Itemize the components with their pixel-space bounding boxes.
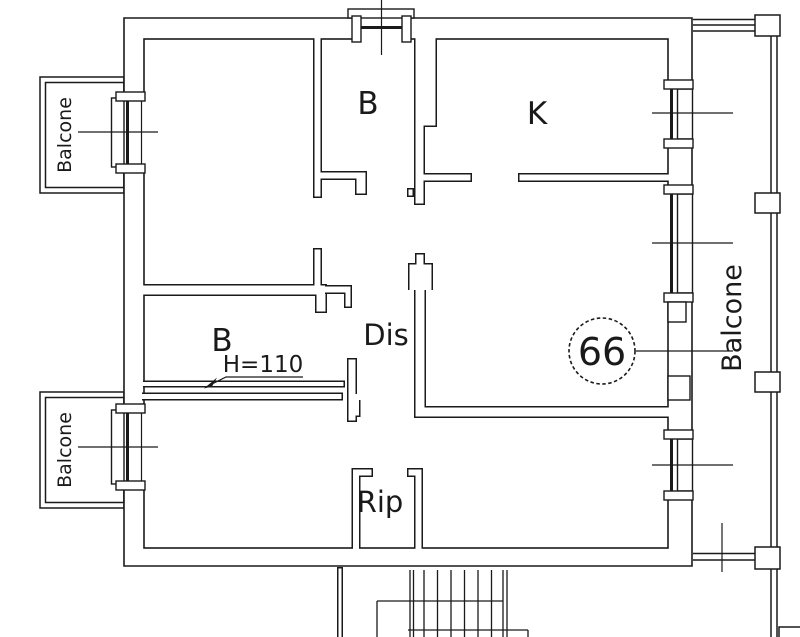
- annotation-ceiling-height: H=110: [223, 352, 303, 378]
- floor-plan-canvas: B K B Dis Rip H=110 66 Balcone Balcone B…: [0, 0, 800, 637]
- balcony-label-left-upper: Balcone: [54, 97, 76, 173]
- staircase: [377, 570, 528, 637]
- room-label-storage: Rip: [357, 485, 404, 519]
- floor-plan-drawing: B K B Dis Rip H=110 66 Balcone Balcone B…: [0, 0, 800, 637]
- unit-number-text: 66: [578, 330, 626, 374]
- room-label-bathroom-top: B: [357, 86, 378, 122]
- room-label-kitchen: K: [527, 96, 548, 132]
- room-label-hallway: Dis: [363, 318, 409, 352]
- balcony-label-left-lower: Balcone: [54, 412, 76, 488]
- balcony-label-right: Balcone: [717, 264, 748, 372]
